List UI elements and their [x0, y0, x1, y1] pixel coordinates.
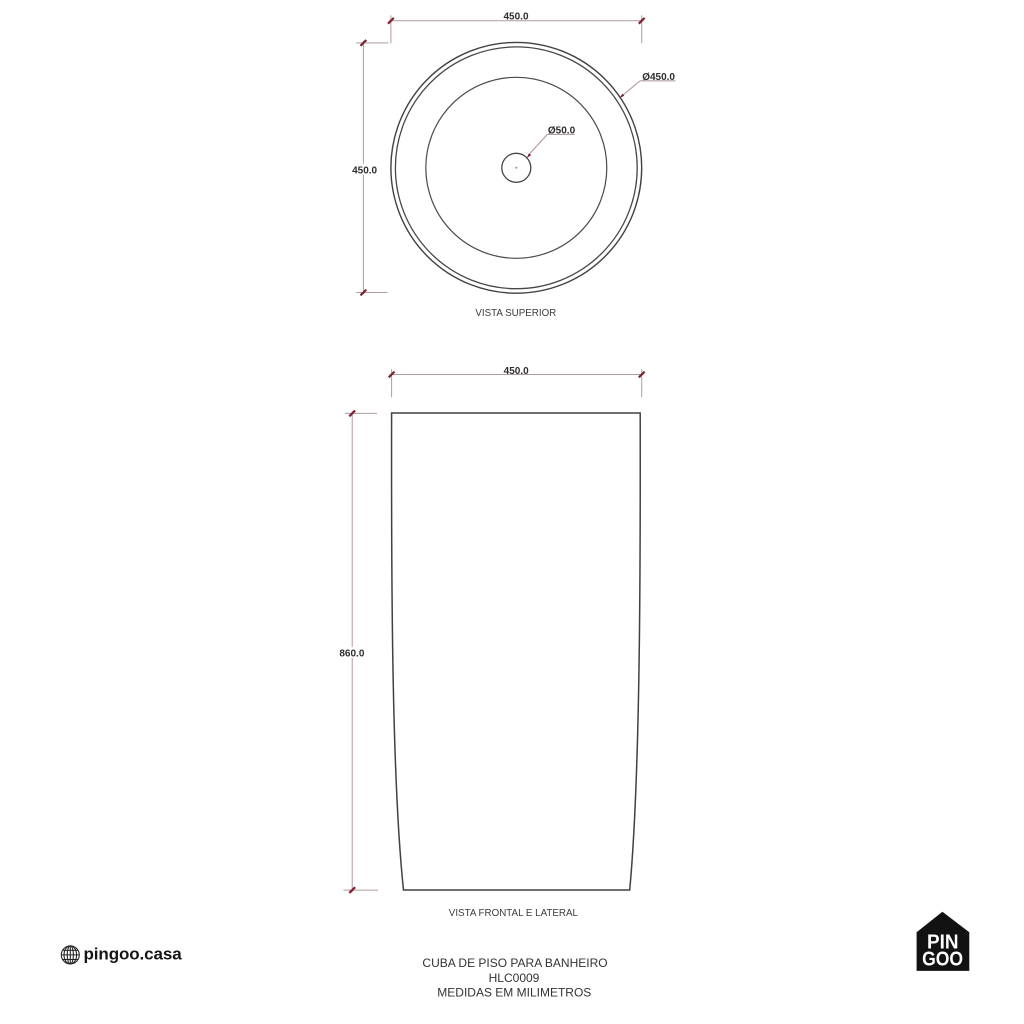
svg-text:MEDIDAS EM MILIMETROS: MEDIDAS EM MILIMETROS [437, 986, 591, 1000]
svg-text:860.0: 860.0 [339, 648, 364, 659]
svg-text:Ø450.0: Ø450.0 [642, 72, 675, 83]
svg-text:GOO: GOO [922, 949, 963, 971]
svg-text:Ø50.0: Ø50.0 [548, 126, 576, 137]
svg-text:CUBA DE PISO PARA BANHEIRO: CUBA DE PISO PARA BANHEIRO [422, 956, 607, 970]
svg-text:VISTA SUPERIOR: VISTA SUPERIOR [475, 308, 556, 319]
svg-text:pingoo.casa: pingoo.casa [84, 945, 183, 964]
svg-text:450.0: 450.0 [352, 165, 377, 176]
svg-text:VISTA FRONTAL E LATERAL: VISTA FRONTAL E LATERAL [449, 908, 579, 919]
svg-text:450.0: 450.0 [504, 366, 529, 377]
svg-text:HLC0009: HLC0009 [489, 971, 540, 985]
svg-text:450.0: 450.0 [503, 12, 528, 23]
